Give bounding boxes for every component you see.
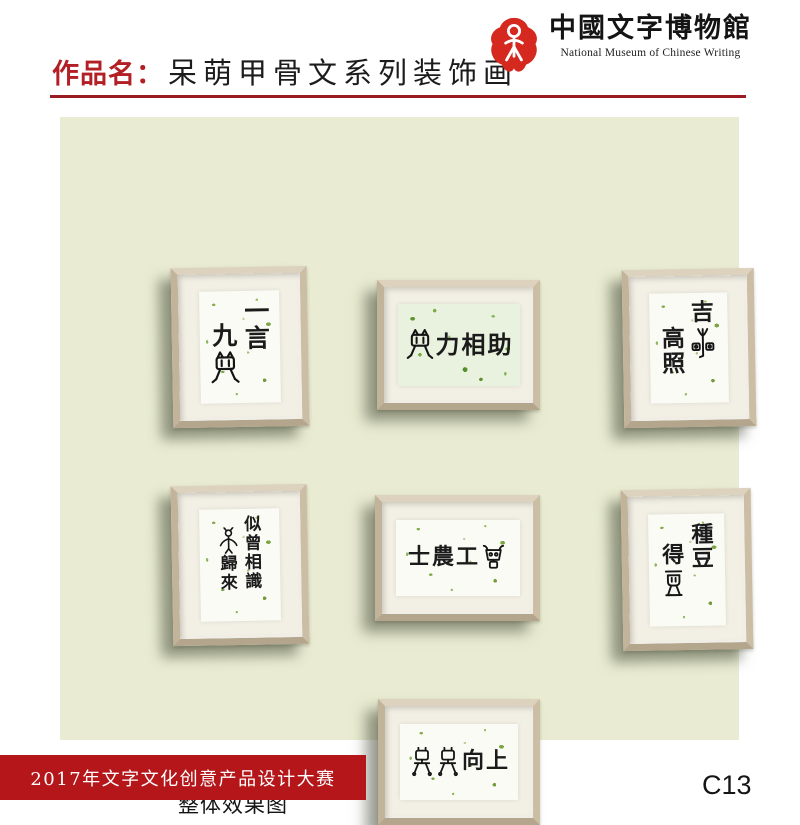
calligraphy-char: 相 [245,554,262,572]
calligraphy-char: 一 [244,298,269,325]
calligraphy-char: 種 [691,523,713,546]
frame-mat: 一言九 [178,273,303,421]
oracle-xing-star-glyph [690,326,717,360]
calligraphy-char: 吉 [691,301,714,326]
artwork-paper: 向上 [400,724,518,800]
framed-artwork-tian-tian-xiang-shang: 向上 [378,699,540,825]
museum-logo-icon [486,13,542,77]
museum-name-en: National Museum of Chinese Writing [561,47,741,59]
calligraphy-char: 九 [212,323,237,350]
oracle-shang-glyph [480,544,507,572]
entry-code: C13 [702,770,752,801]
work-name-label: 作品名： [52,52,164,91]
calligraphy-char: 照 [662,352,685,377]
calligraphy-char: 歸 [220,556,237,574]
oracle-tian-figure-glyph [436,747,460,777]
artwork-paper: 吉高照 [649,292,729,403]
calligraphy-char: 識 [245,573,262,591]
framed-artwork-si-zeng-xiang-shi-yan-gui-lai: 似曾相識歸來 [171,484,310,646]
framed-artwork-ding-li-xiang-zhu: 力相助 [377,280,540,410]
oracle-ding-cauldron-cat-glyph [210,350,241,387]
oracle-tian-figure-glyph [410,747,434,777]
artwork-paper: 一言九 [199,290,281,403]
museum-name-cn: 中國文字博物館 [549,13,752,45]
competition-banner: 2017年文字文化创意产品设计大赛 [0,755,366,800]
page-title: 作品名： 呆萌甲骨文系列装饰画 [52,50,518,92]
artwork-paper: 似曾相識歸來 [199,508,281,621]
artwork-paper: 力相助 [398,304,520,386]
competition-banner-text: 2017年文字文化创意产品设计大赛 [30,765,335,791]
frame-mat: 力相助 [384,287,533,403]
frame-mat: 士農工 [382,502,533,614]
framed-artwork-yi-yan-jiu-ding: 一言九 [171,266,310,428]
oracle-ding-cauldron-cat-glyph [406,328,434,362]
calligraphy-char: 似 [244,517,261,535]
calligraphy-char: 力 [436,332,460,357]
calligraphy-char: 言 [245,326,270,353]
calligraphy-char: 豆 [692,547,714,570]
frame-mat: 似曾相識歸來 [178,491,303,639]
artwork-paper: 種豆得 [648,513,726,626]
calligraphy-char: 農 [432,546,454,569]
calligraphy-char: 來 [221,575,238,593]
calligraphy-char: 上 [486,750,508,773]
calligraphy-char: 工 [456,546,478,569]
framed-artwork-ji-xing-gao-zhao: 吉高照 [622,268,757,428]
title-divider-rule [50,95,746,98]
calligraphy-char: 得 [662,544,684,567]
calligraphy-char: 相 [462,332,486,357]
calligraphy-char: 向 [462,750,484,773]
oracle-dou-vessel-glyph [660,568,688,600]
framed-artwork-zhong-dou-de-dou: 種豆得 [621,488,754,651]
calligraphy-char: 助 [488,332,512,357]
oracle-yan-swallow-glyph [217,527,239,555]
calligraphy-char: 高 [662,327,685,352]
museum-logo: 中國文字博物館 National Museum of Chinese Writi… [486,13,752,77]
frame-mat: 吉高照 [629,275,749,421]
framed-artwork-shi-nong-gong-shang: 士農工 [375,495,540,621]
frame-mat: 種豆得 [628,495,747,644]
wall-panel: 一言九 力相助 吉高照 似曾相識歸來 士農工 種豆得 向上 整体效果图 [60,117,739,740]
artwork-paper: 士農工 [396,520,520,596]
calligraphy-char: 曾 [244,535,261,553]
calligraphy-char: 士 [408,546,430,569]
frame-mat: 向上 [385,706,533,818]
work-title-text: 呆萌甲骨文系列装饰画 [168,50,518,92]
